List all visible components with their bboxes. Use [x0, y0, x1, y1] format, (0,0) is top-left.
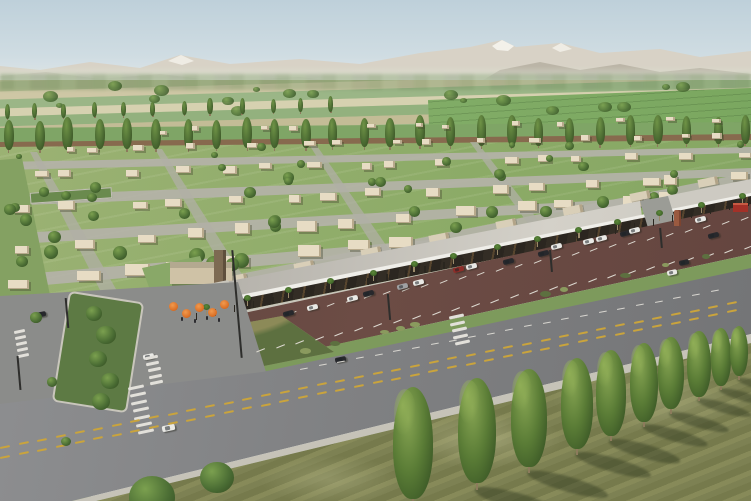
house	[304, 141, 316, 146]
road-car-windshield	[669, 270, 673, 274]
house	[15, 246, 30, 254]
entry-sculpture	[674, 210, 681, 226]
house	[422, 139, 430, 145]
canopy-column	[367, 278, 368, 285]
house	[571, 156, 581, 162]
canopy-column	[482, 254, 483, 261]
palm-tree	[656, 210, 663, 216]
median-shrub	[300, 348, 311, 354]
far-poplar-tree	[298, 98, 303, 112]
foreground-poplar-highlight	[394, 389, 416, 436]
median-tree	[92, 393, 110, 410]
palm-tree	[534, 236, 541, 242]
median-tree	[39, 187, 50, 197]
house	[332, 140, 343, 145]
house	[393, 140, 401, 144]
foreground-poplar-highlight	[512, 371, 531, 412]
residential-tree	[509, 142, 515, 148]
house	[712, 133, 722, 138]
house	[518, 201, 537, 210]
aerial-development-rendering	[0, 0, 751, 501]
parked-car-windshield	[349, 297, 354, 301]
house	[87, 148, 98, 153]
residential-tree	[268, 216, 280, 227]
house	[529, 183, 545, 191]
house	[77, 271, 101, 281]
median-tree	[86, 306, 102, 321]
canopy-column	[729, 203, 730, 210]
median-tree	[101, 373, 118, 389]
parked-car-windshield	[505, 260, 510, 264]
canopy-column	[196, 313, 197, 320]
canopy-column	[443, 262, 444, 269]
canopy-column	[539, 242, 540, 249]
median-shrub	[396, 326, 405, 331]
foreground-poplar-highlight	[631, 345, 647, 378]
pedestrian	[194, 319, 196, 323]
foreground-poplar-highlight	[712, 330, 723, 354]
house	[426, 188, 440, 197]
house	[529, 138, 541, 144]
house	[67, 147, 75, 152]
house	[739, 153, 751, 159]
windbreak-poplar-tree	[35, 121, 45, 150]
residential-tree	[88, 211, 98, 221]
parked-car-windshield	[622, 232, 627, 236]
house	[8, 280, 29, 290]
pedestrian	[218, 318, 220, 322]
residential-tree	[179, 208, 190, 219]
house	[58, 201, 75, 210]
palm-tree	[285, 287, 292, 293]
canopy-column	[405, 270, 406, 277]
cafe-umbrella	[182, 309, 191, 318]
house	[477, 138, 486, 143]
cafe-umbrella	[208, 308, 217, 317]
windbreak-poplar-tree	[270, 119, 279, 148]
palm-tree	[450, 253, 457, 259]
parked-car-windshield	[697, 218, 702, 222]
house	[362, 163, 372, 170]
residential-tree	[540, 206, 551, 217]
house	[192, 126, 199, 130]
far-poplar-tree	[207, 98, 212, 114]
house	[581, 135, 590, 141]
parked-car-windshield	[455, 268, 460, 272]
canopy-column	[653, 219, 654, 226]
parked-car-windshield	[710, 234, 715, 238]
field-tree	[307, 90, 319, 98]
house	[160, 131, 167, 135]
far-poplar-tree	[61, 104, 66, 117]
house	[367, 124, 376, 128]
residential-tree	[297, 160, 305, 168]
house	[186, 143, 195, 148]
house	[289, 126, 297, 131]
palm-tree	[494, 244, 501, 250]
parked-car-windshield	[285, 312, 290, 316]
windbreak-poplar-tree	[122, 118, 132, 149]
foreground-poplar-highlight	[459, 380, 480, 424]
house	[320, 193, 337, 200]
palm-tree	[614, 219, 621, 225]
house	[58, 170, 71, 177]
parked-car-windshield	[365, 292, 370, 296]
house	[229, 196, 243, 203]
house	[289, 195, 302, 203]
pedestrian	[206, 316, 208, 320]
house	[235, 223, 250, 233]
pedestrian	[181, 317, 183, 321]
palm-tree	[698, 202, 705, 208]
canopy-column	[501, 250, 502, 257]
house	[505, 157, 519, 164]
windbreak-poplar-tree	[741, 115, 750, 143]
residential-tree	[44, 245, 58, 259]
cafe-umbrella	[195, 303, 204, 312]
house	[297, 221, 317, 232]
parked-car-windshield	[540, 252, 545, 256]
cafe-umbrella	[220, 300, 229, 309]
palm-tree	[370, 270, 377, 276]
verge-tree	[30, 312, 42, 323]
windbreak-poplar-tree	[62, 117, 73, 150]
house	[176, 166, 190, 173]
canopy-column	[520, 246, 521, 253]
parked-car-windshield	[468, 265, 473, 269]
parked-car-windshield	[598, 237, 603, 241]
parked-car-windshield	[631, 229, 636, 233]
residential-tree	[257, 143, 265, 151]
foreground-poplar-highlight	[597, 352, 614, 388]
residential-tree	[218, 164, 226, 171]
canopy-column	[710, 207, 711, 214]
canopy-column	[272, 297, 273, 304]
house	[133, 145, 144, 150]
house	[75, 240, 95, 248]
house	[616, 118, 624, 123]
house	[666, 117, 675, 121]
foreground-poplar-highlight	[659, 339, 673, 369]
canopy-column	[748, 199, 749, 206]
palm-tree	[739, 193, 746, 199]
field-tree	[496, 95, 511, 106]
house	[365, 188, 381, 196]
house	[634, 136, 642, 142]
field-tree	[108, 81, 122, 91]
house	[261, 126, 269, 130]
windbreak-poplar-tree	[360, 118, 369, 147]
residential-tree	[546, 155, 553, 161]
median-shrub	[330, 341, 340, 346]
house	[682, 134, 690, 139]
foreground-poplar-highlight	[688, 333, 701, 361]
house	[512, 121, 520, 126]
far-poplar-tree	[240, 98, 245, 113]
median-shrub	[540, 291, 551, 297]
canopy-column	[386, 274, 387, 281]
house	[712, 119, 721, 123]
palm-tree	[411, 261, 418, 267]
residential-tree	[737, 141, 744, 148]
canopy-column	[615, 227, 616, 234]
house	[416, 123, 423, 128]
house	[338, 219, 354, 228]
canopy-column	[348, 282, 349, 289]
verge-tree	[4, 204, 15, 214]
house	[133, 202, 148, 209]
house	[679, 153, 693, 161]
median-shrub	[410, 322, 420, 327]
windbreak-poplar-tree	[596, 117, 605, 145]
house	[298, 245, 321, 256]
house	[643, 178, 661, 186]
house	[731, 172, 749, 180]
windbreak-poplar-tree	[4, 120, 14, 150]
house	[138, 235, 156, 244]
windbreak-poplar-tree	[446, 117, 456, 146]
canopy-column	[462, 258, 463, 265]
field-tree	[43, 91, 58, 102]
house	[165, 199, 181, 207]
far-poplar-tree	[182, 101, 187, 115]
cafe-umbrella	[169, 302, 178, 311]
verge-tree	[16, 256, 28, 267]
windbreak-poplar-tree	[682, 116, 691, 144]
parked-car-windshield	[399, 285, 404, 289]
median-shrub	[702, 254, 710, 259]
residential-tree	[450, 222, 462, 233]
windbreak-poplar-tree	[507, 115, 517, 146]
verge-tree	[47, 377, 58, 387]
house	[625, 153, 638, 161]
canopy-column	[424, 266, 425, 273]
house	[396, 214, 411, 222]
windbreak-poplar-tree	[212, 120, 221, 148]
red-monument-sign	[733, 203, 748, 212]
house	[442, 125, 450, 129]
house	[307, 162, 322, 168]
house	[493, 185, 509, 194]
parked-car-windshield	[309, 306, 314, 310]
canopy-column	[291, 293, 292, 300]
house	[384, 161, 394, 167]
canopy-column	[691, 211, 692, 218]
residential-tree	[244, 187, 255, 198]
house	[586, 180, 599, 188]
house	[247, 143, 257, 148]
residential-tree	[578, 162, 588, 172]
residential-tree	[667, 185, 678, 195]
house	[35, 171, 49, 178]
residential-tree	[113, 246, 127, 260]
field-tree	[460, 98, 467, 103]
restaurant-tower	[214, 250, 226, 284]
parked-car-windshield	[585, 240, 590, 244]
house	[259, 163, 272, 169]
foreground-poplar-highlight	[731, 328, 741, 349]
residential-tree	[597, 196, 610, 208]
parked-car-windshield	[415, 281, 420, 285]
residential-tree	[90, 182, 101, 193]
residential-tree	[48, 231, 61, 243]
road-car-windshield	[681, 260, 685, 264]
canopy-column	[310, 289, 311, 296]
far-poplar-tree	[121, 102, 126, 116]
residential-tree	[211, 152, 218, 158]
windbreak-poplar-tree	[95, 119, 105, 150]
parked-car-windshield	[553, 245, 558, 249]
median-tree	[96, 326, 115, 344]
house	[557, 122, 564, 126]
foreground-poplar-highlight	[562, 360, 580, 398]
road-car-windshield	[164, 425, 170, 430]
residential-tree	[494, 169, 504, 179]
windbreak-poplar-tree	[653, 115, 663, 145]
canopy-column	[253, 301, 254, 308]
far-poplar-tree	[5, 104, 10, 119]
house	[188, 228, 203, 238]
house	[456, 206, 477, 216]
house	[126, 170, 139, 177]
